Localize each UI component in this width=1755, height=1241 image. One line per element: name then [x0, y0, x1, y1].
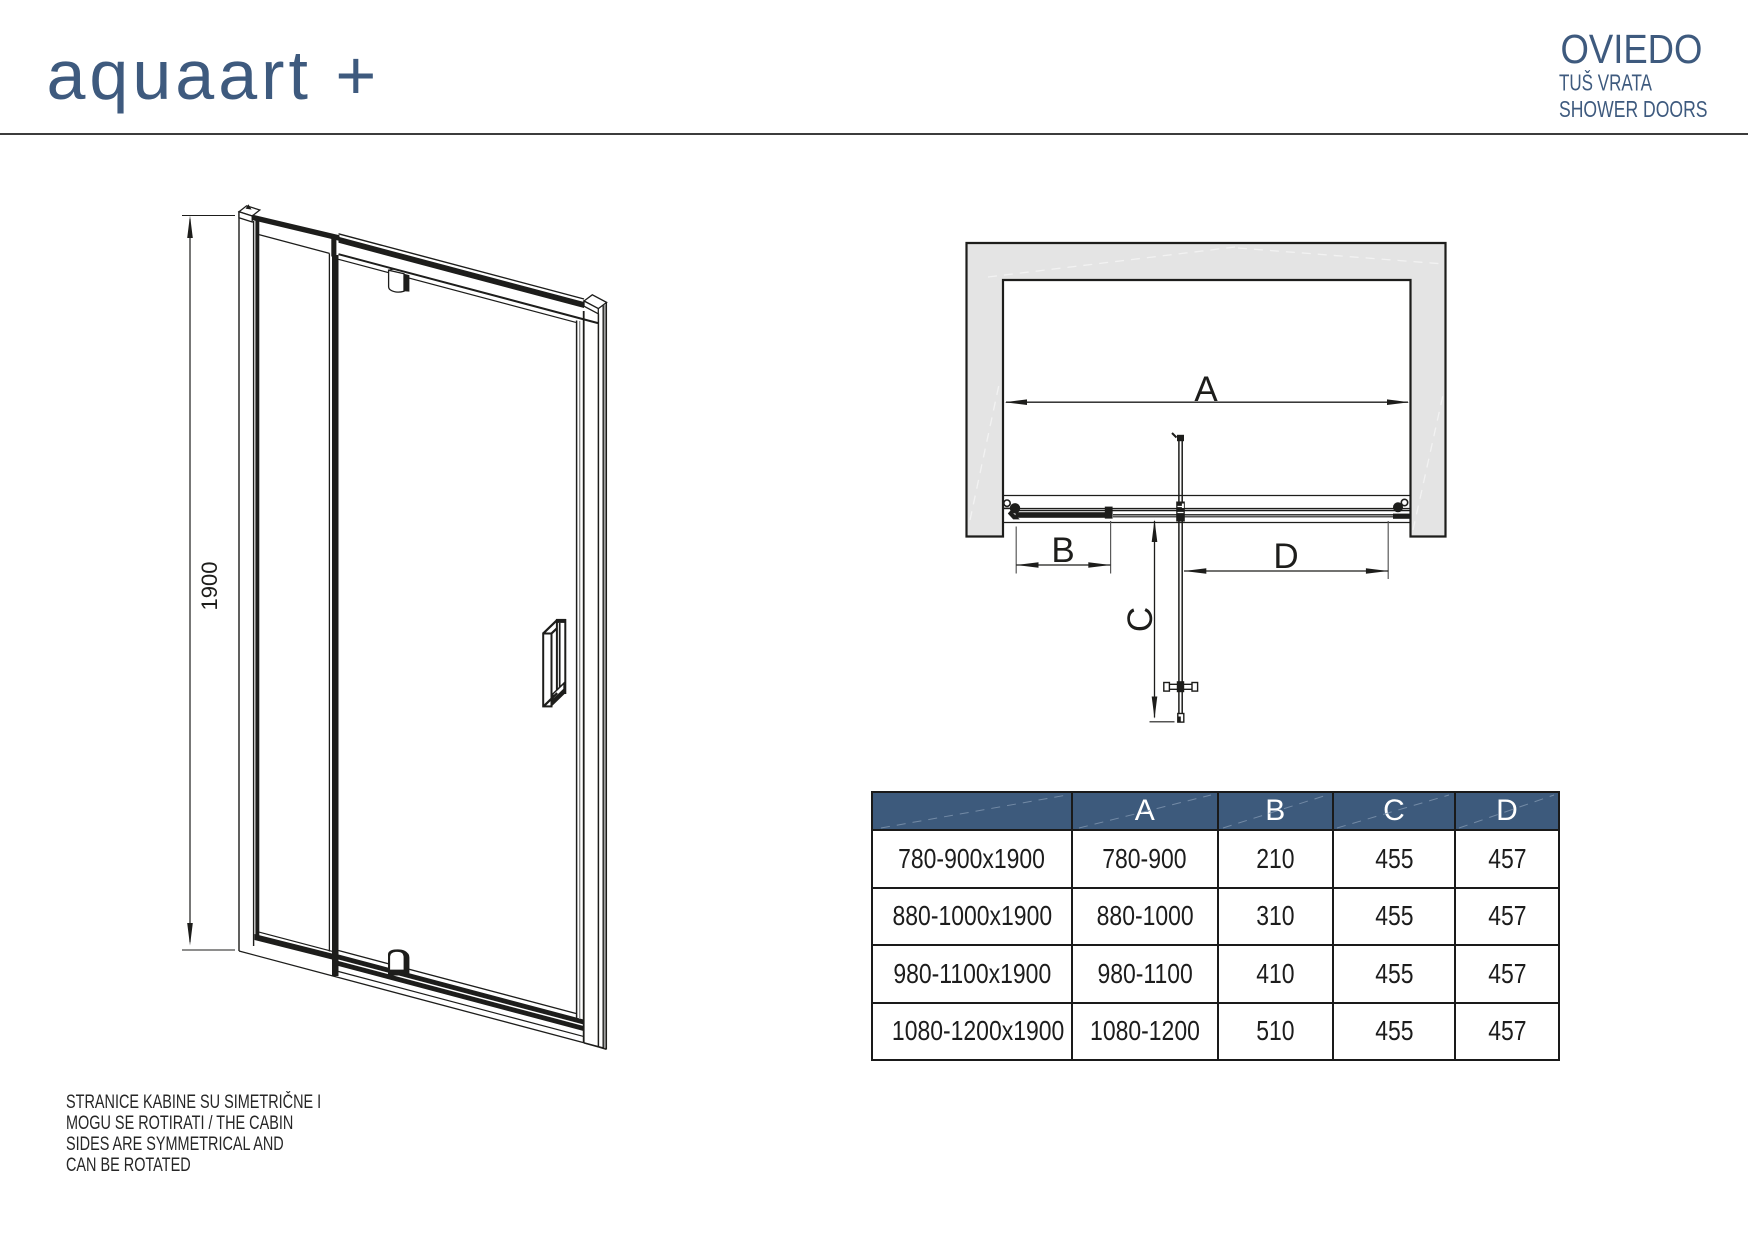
svg-text:B: B	[1051, 531, 1074, 570]
svg-text:A: A	[1194, 370, 1218, 409]
svg-text:C: C	[1121, 607, 1160, 632]
svg-text:D: D	[1273, 537, 1298, 576]
svg-text:1900: 1900	[197, 562, 222, 611]
